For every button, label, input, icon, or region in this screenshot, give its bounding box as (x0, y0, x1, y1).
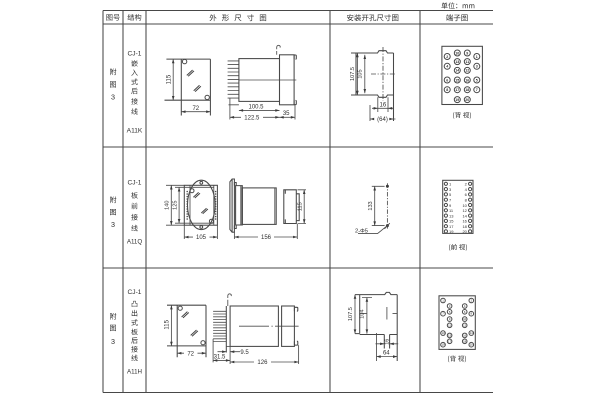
svg-text:115: 115 (166, 74, 172, 84)
svg-text:105: 105 (357, 69, 363, 78)
svg-text:107.5: 107.5 (348, 307, 354, 321)
svg-text:CJ-1: CJ-1 (128, 179, 142, 186)
svg-text:9: 9 (466, 51, 468, 55)
svg-text:72: 72 (187, 351, 194, 357)
svg-text:125: 125 (172, 201, 178, 210)
svg-text:A11Q: A11Q (127, 238, 143, 245)
svg-text:13: 13 (449, 213, 454, 218)
svg-text:2: 2 (465, 182, 468, 187)
svg-text:9: 9 (449, 317, 451, 321)
svg-text:12: 12 (462, 208, 467, 213)
svg-text:17: 17 (448, 339, 452, 343)
svg-text:31.5: 31.5 (214, 354, 226, 360)
svg-text:18: 18 (465, 88, 469, 92)
svg-text:10: 10 (462, 203, 467, 208)
svg-text:15: 15 (455, 78, 459, 82)
svg-text:2: 2 (471, 299, 473, 303)
svg-text:12: 12 (465, 69, 469, 73)
svg-text:100.5: 100.5 (248, 105, 264, 111)
svg-text:16: 16 (380, 102, 387, 108)
svg-text:12: 12 (463, 323, 467, 327)
svg-text:6: 6 (446, 78, 448, 82)
svg-text:126: 126 (257, 360, 268, 366)
svg-text:16: 16 (384, 339, 390, 345)
svg-text:11: 11 (465, 60, 469, 64)
svg-text:A11H: A11H (127, 368, 142, 375)
svg-text:140: 140 (164, 201, 170, 210)
svg-text:3: 3 (111, 337, 115, 346)
svg-text:1: 1 (442, 299, 444, 303)
svg-text:3: 3 (449, 187, 452, 192)
svg-text:20: 20 (465, 98, 469, 102)
svg-text:5: 5 (449, 310, 451, 314)
svg-text:3: 3 (449, 304, 451, 308)
svg-text:115: 115 (165, 319, 171, 329)
svg-text:5: 5 (449, 192, 452, 197)
svg-text:CJ-1: CJ-1 (128, 51, 142, 58)
svg-text:14: 14 (462, 213, 467, 218)
svg-text:3: 3 (111, 220, 115, 229)
svg-text:16: 16 (463, 333, 467, 337)
svg-text:64: 64 (383, 351, 390, 357)
svg-text:4: 4 (446, 65, 448, 69)
svg-text:122.5: 122.5 (244, 116, 260, 122)
svg-text:19: 19 (449, 229, 454, 234)
svg-text:19: 19 (455, 98, 459, 102)
svg-text:7: 7 (442, 312, 444, 316)
svg-text:11: 11 (449, 208, 454, 213)
svg-text:16: 16 (462, 219, 467, 224)
svg-text:133: 133 (368, 201, 374, 210)
svg-text:14: 14 (455, 69, 459, 73)
svg-text:7: 7 (476, 88, 478, 92)
svg-text:72: 72 (192, 106, 199, 112)
svg-text:A11K: A11K (127, 128, 143, 135)
svg-text:156: 156 (261, 235, 272, 241)
svg-text:19: 19 (441, 343, 445, 347)
svg-text:35: 35 (283, 111, 290, 117)
svg-text:13: 13 (441, 331, 445, 335)
svg-text:4: 4 (464, 304, 466, 308)
svg-text:115: 115 (298, 202, 304, 211)
svg-text:2: 2 (446, 55, 448, 59)
svg-text:107.5: 107.5 (350, 67, 356, 81)
svg-text:6: 6 (465, 192, 468, 197)
svg-text:5: 5 (476, 78, 478, 82)
svg-text:17: 17 (455, 88, 459, 92)
svg-text:8: 8 (465, 198, 468, 203)
svg-text:1: 1 (449, 182, 452, 187)
svg-text:(64): (64) (377, 117, 388, 123)
svg-text:13: 13 (455, 60, 459, 64)
svg-text:9.5: 9.5 (240, 350, 249, 356)
svg-text:7: 7 (449, 198, 452, 203)
svg-text:8: 8 (446, 88, 448, 92)
svg-text:20: 20 (470, 343, 474, 347)
svg-text:2-Φ5: 2-Φ5 (355, 229, 368, 235)
svg-text:3: 3 (476, 65, 478, 69)
svg-text:104: 104 (360, 309, 366, 318)
svg-text:18: 18 (463, 339, 467, 343)
svg-text:16: 16 (465, 78, 469, 82)
svg-text:10: 10 (463, 317, 467, 321)
svg-text:20: 20 (462, 229, 467, 234)
svg-text:8: 8 (471, 312, 473, 316)
svg-text:10: 10 (455, 51, 459, 55)
svg-text:11: 11 (448, 323, 451, 327)
svg-text:9: 9 (449, 203, 452, 208)
svg-text:15: 15 (449, 219, 454, 224)
svg-text:4: 4 (465, 187, 468, 192)
svg-text:105: 105 (196, 235, 207, 241)
svg-text:6: 6 (464, 310, 466, 314)
svg-text:1: 1 (476, 55, 478, 59)
svg-text:14: 14 (470, 331, 474, 335)
svg-text:3: 3 (111, 93, 115, 102)
svg-text:CJ-1: CJ-1 (128, 289, 142, 296)
svg-text:15: 15 (448, 333, 452, 337)
